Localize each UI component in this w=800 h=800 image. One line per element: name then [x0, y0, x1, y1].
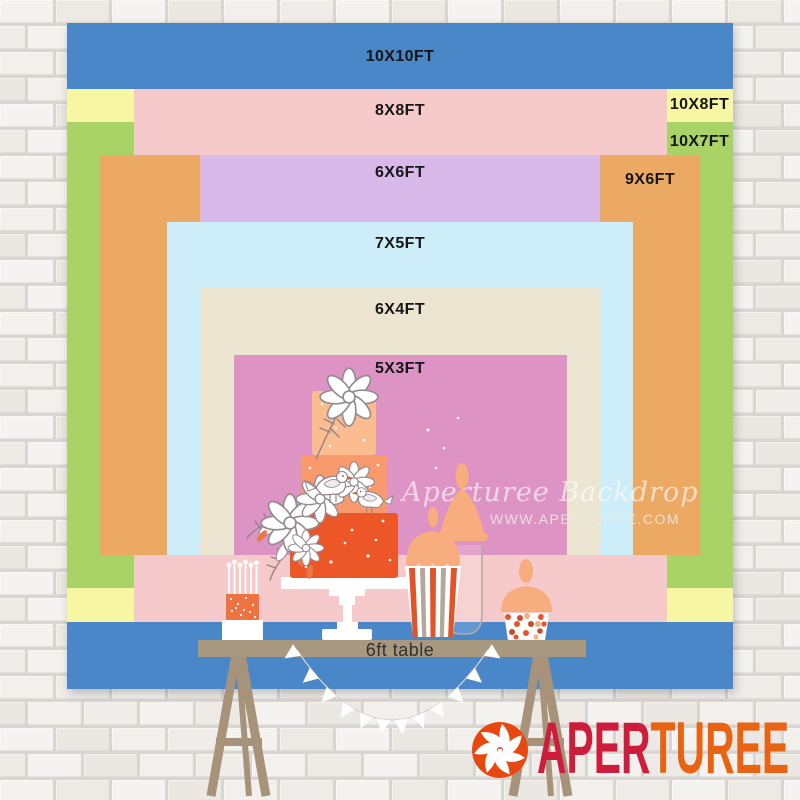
size-label-10x10ft: 10X10FT	[67, 48, 733, 66]
size-label-6x4ft: 6X4FT	[67, 301, 733, 319]
aperture-shutter-icon	[471, 721, 529, 779]
size-label-7x5ft: 7X5FT	[67, 235, 733, 253]
brand-logo-text: APERTUREE	[537, 712, 789, 785]
size-label-10x8ft: 10X8FT	[666, 96, 733, 114]
size-label-8x8ft: 8X8FT	[67, 102, 733, 120]
brand-logo-text-part1: APER	[537, 708, 651, 789]
table-size-label: 6ft table	[300, 640, 500, 661]
size-label-9x6ft: 9X6FT	[600, 171, 700, 189]
brand-logo: APERTUREE	[471, 718, 800, 784]
backdrop-product-image: 10X10FT 8X8FT 6X6FT 7X5FT 6X4FT 5X3FT 10…	[0, 0, 800, 800]
candy-bowl-illustration	[501, 559, 552, 641]
size-label-10x7ft: 10X7FT	[666, 133, 733, 151]
brand-logo-text-part2: TUREE	[651, 708, 790, 789]
trestle-leg-left	[211, 652, 266, 796]
cake-stand	[281, 577, 413, 640]
candle-cake-illustration	[222, 560, 263, 640]
